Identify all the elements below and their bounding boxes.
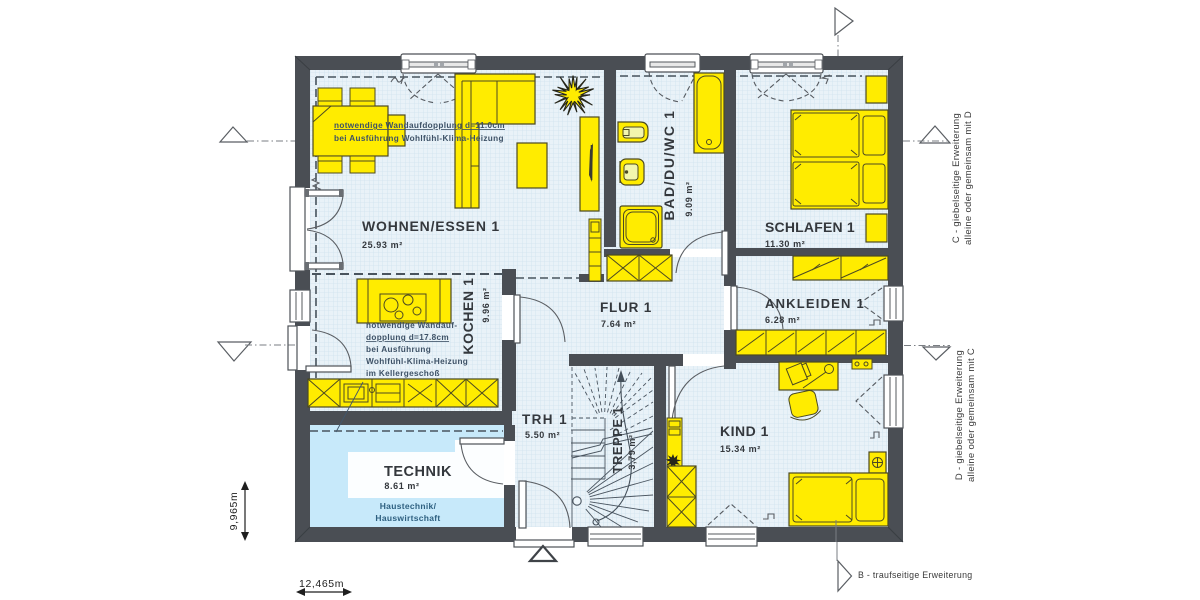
svg-text:notwendige Wandaufdopplung d=1: notwendige Wandaufdopplung d=11.0cm xyxy=(334,121,505,130)
svg-text:12,465m: 12,465m xyxy=(299,578,344,590)
svg-text:9.96 m²: 9.96 m² xyxy=(481,287,491,322)
svg-text:5.50 m²: 5.50 m² xyxy=(525,430,560,440)
svg-text:15.34 m²: 15.34 m² xyxy=(720,444,761,454)
svg-text:BAD/DU/WC 1: BAD/DU/WC 1 xyxy=(661,110,677,221)
svg-text:notwendige Wandauf-: notwendige Wandauf- xyxy=(366,321,457,330)
svg-text:9.09 m²: 9.09 m² xyxy=(684,181,694,216)
svg-text:alleine oder gemeinsam mit D: alleine oder gemeinsam mit D xyxy=(963,111,974,245)
svg-text:bei Ausführung Wohlfühl-Klima-: bei Ausführung Wohlfühl-Klima-Heizung xyxy=(334,134,504,143)
svg-text:im Kellergeschoß: im Kellergeschoß xyxy=(366,369,440,378)
svg-text:6.28 m²: 6.28 m² xyxy=(765,315,800,325)
svg-text:TECHNIK: TECHNIK xyxy=(384,464,452,480)
svg-text:25.93 m²: 25.93 m² xyxy=(362,240,403,250)
svg-text:Wohlfühl-Klima-Heizung: Wohlfühl-Klima-Heizung xyxy=(366,357,468,366)
svg-text:8.61 m²: 8.61 m² xyxy=(384,481,419,491)
svg-text:KOCHEN 1: KOCHEN 1 xyxy=(460,277,476,354)
svg-text:dopplung d=17.8cm: dopplung d=17.8cm xyxy=(366,333,449,342)
svg-text:alleine oder gemeinsam mit C: alleine oder gemeinsam mit C xyxy=(966,348,977,482)
svg-text:Haustechnik/: Haustechnik/ xyxy=(380,501,437,511)
svg-text:TRH 1: TRH 1 xyxy=(522,412,568,427)
svg-text:SCHLAFEN 1: SCHLAFEN 1 xyxy=(765,219,855,235)
svg-text:B - traufseitige Erweiterung: B - traufseitige Erweiterung xyxy=(858,570,973,580)
svg-text:KIND 1: KIND 1 xyxy=(720,423,769,439)
svg-text:WOHNEN/ESSEN 1: WOHNEN/ESSEN 1 xyxy=(362,218,500,234)
svg-text:C - giebelseitige Erweiterung: C - giebelseitige Erweiterung xyxy=(951,113,962,243)
svg-text:bei Ausführung: bei Ausführung xyxy=(366,345,431,354)
svg-text:ANKLEIDEN 1: ANKLEIDEN 1 xyxy=(765,296,865,311)
svg-text:TREPPE 1: TREPPE 1 xyxy=(610,407,625,474)
svg-text:9,965m: 9,965m xyxy=(228,492,240,531)
svg-text:FLUR 1: FLUR 1 xyxy=(600,300,652,315)
svg-text:3,79 m²: 3,79 m² xyxy=(627,434,637,469)
svg-text:D - giebelseitige Erweiterung: D - giebelseitige Erweiterung xyxy=(954,350,965,480)
svg-text:11.30 m²: 11.30 m² xyxy=(765,239,805,249)
svg-text:7.64 m²: 7.64 m² xyxy=(601,319,636,329)
svg-text:Hauswirtschaft: Hauswirtschaft xyxy=(375,513,440,523)
